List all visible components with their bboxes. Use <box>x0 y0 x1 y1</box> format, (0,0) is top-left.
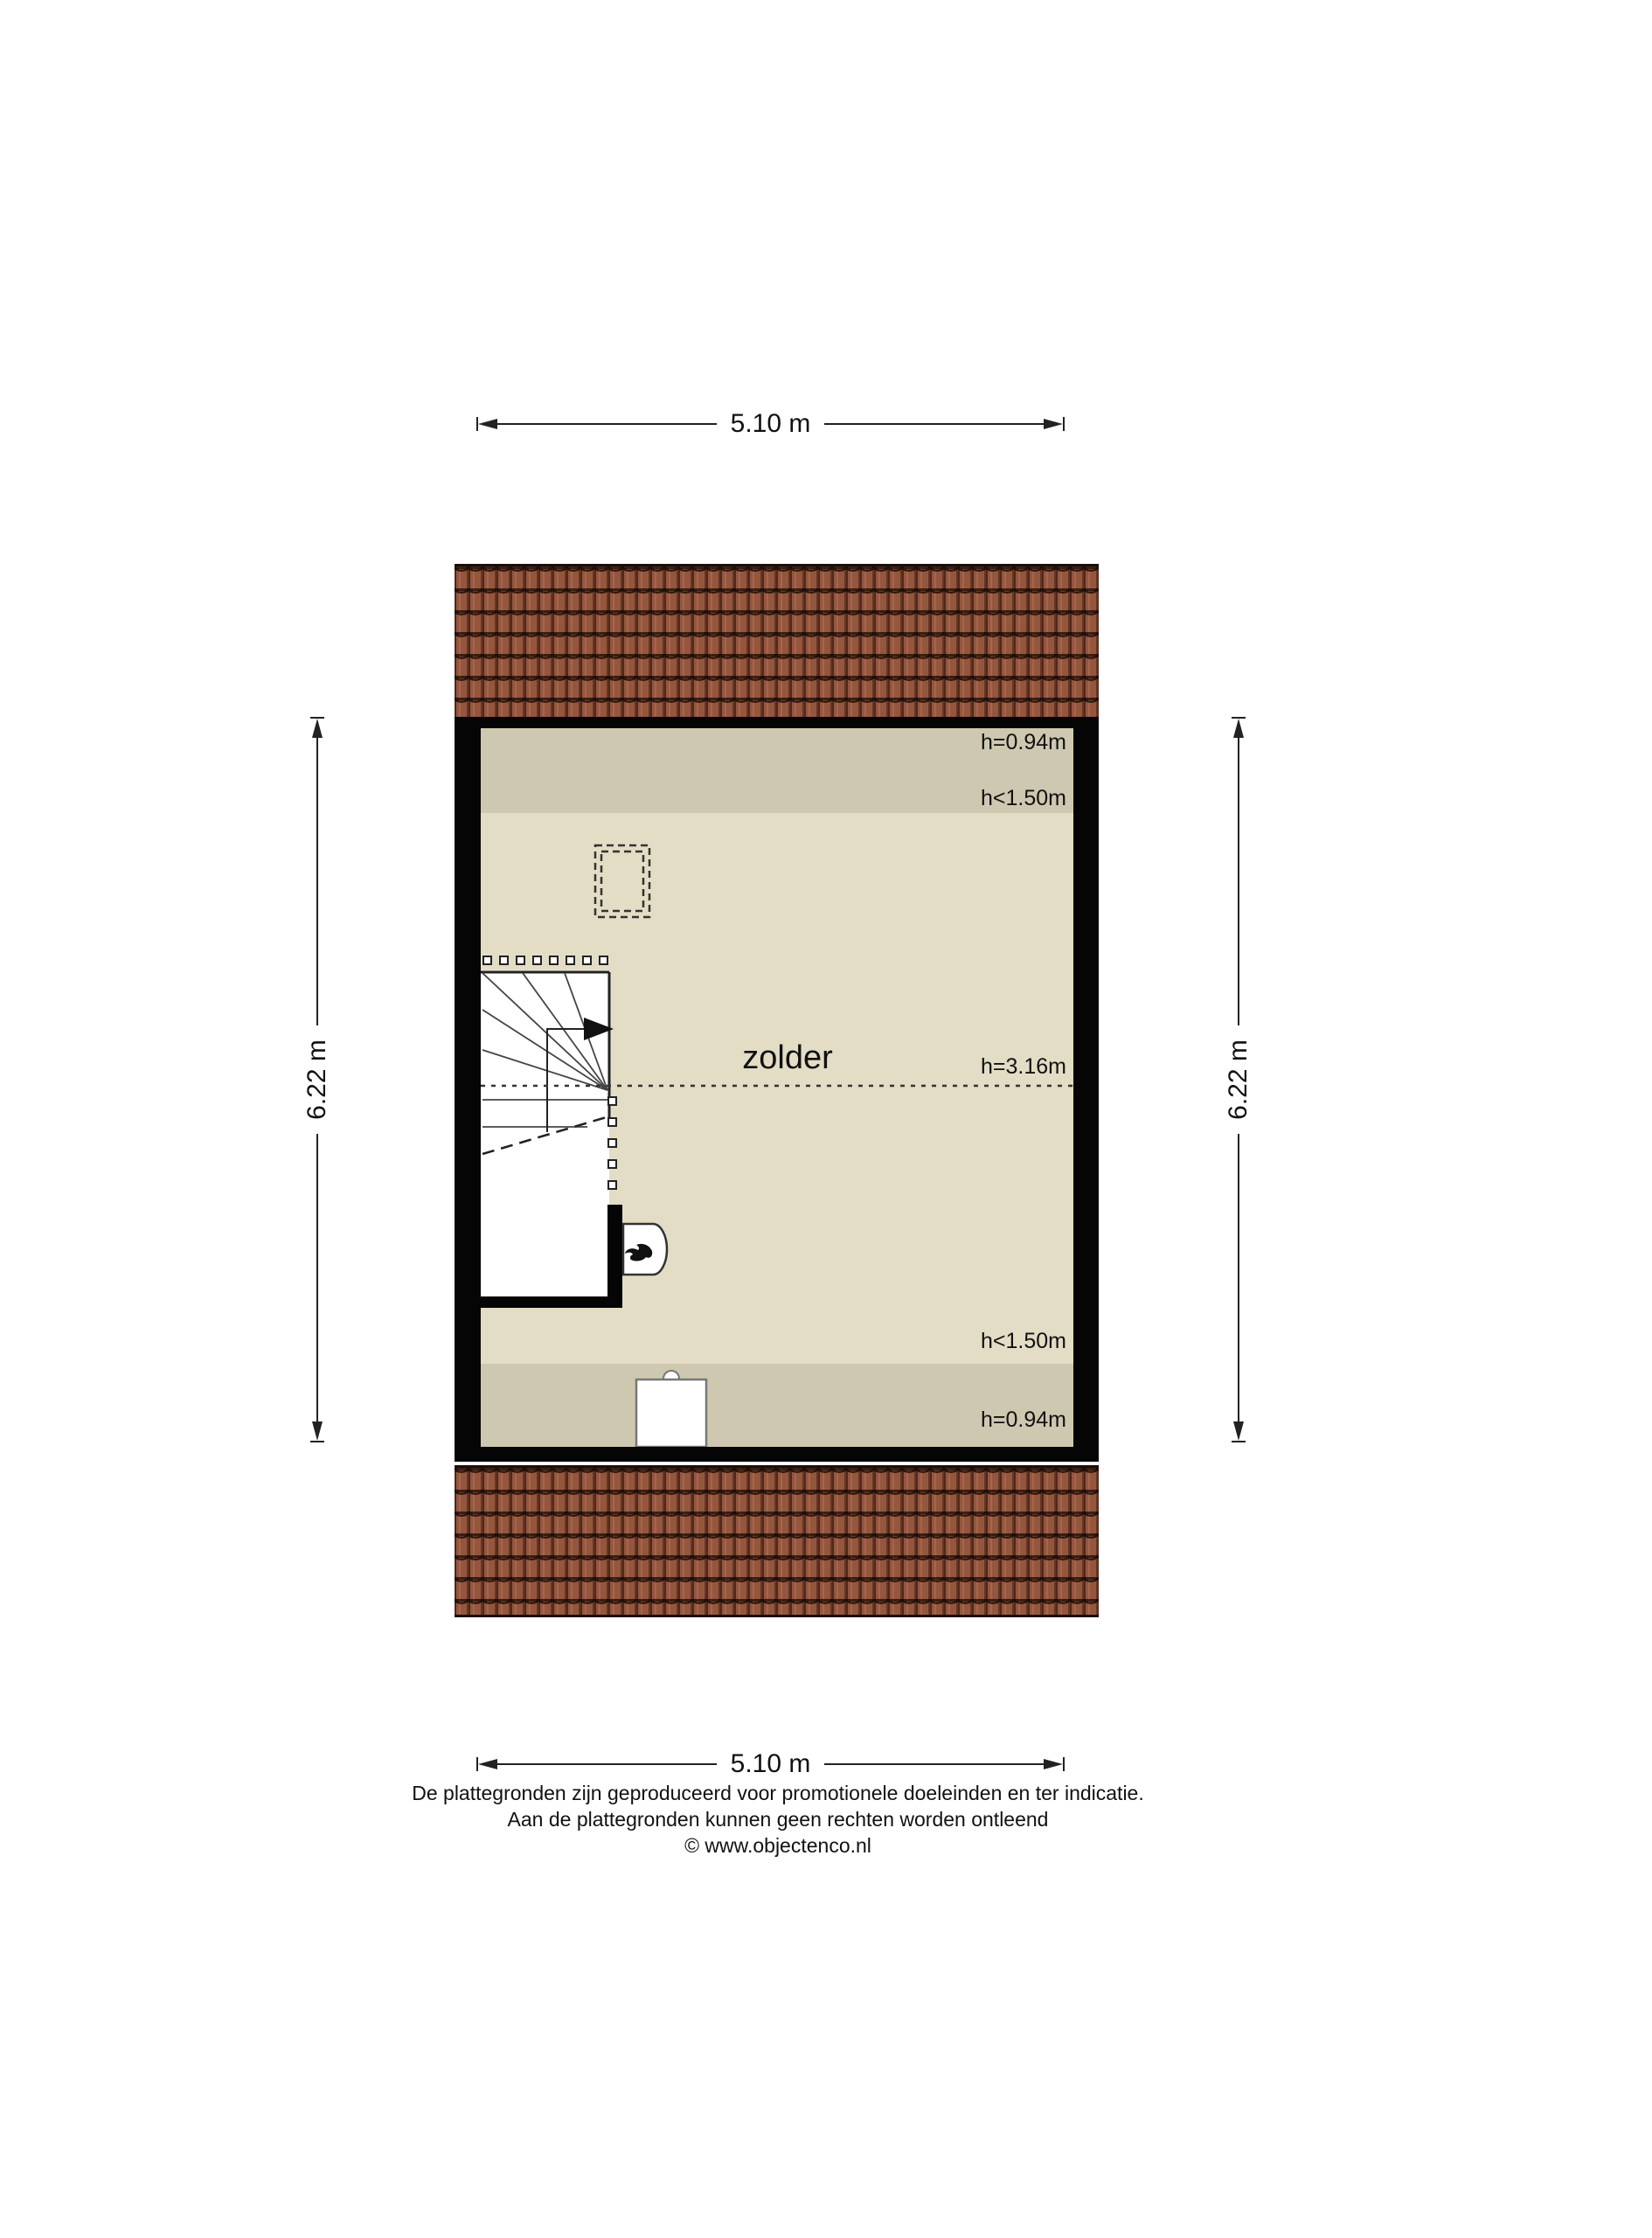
staircase <box>481 956 622 1308</box>
arrow-up-icon <box>1233 719 1244 738</box>
dimension-end-tick <box>1232 1441 1246 1442</box>
arrow-left-icon <box>478 419 497 429</box>
dimension-left-label: 6.22 m <box>302 1025 332 1134</box>
stairwell <box>481 970 609 1296</box>
dimension-line <box>316 736 318 1025</box>
dimension-line <box>316 1134 318 1423</box>
stair-top-edge-marks <box>483 956 607 964</box>
attic-floor: h=0.94m h<1.50m h=3.16m h<1.50m h=0.94m … <box>481 728 1073 1447</box>
dimension-left: 6.22 m <box>307 717 328 1442</box>
dimension-line <box>824 423 1045 425</box>
dimension-line <box>1238 1134 1239 1423</box>
footer-line-3: © www.objectenco.nl <box>350 1832 1206 1859</box>
floorplan-page: 5.10 m 6.22 m 6.22 m <box>0 0 1652 2238</box>
arrow-left-icon <box>478 1759 497 1769</box>
dimension-top: 5.10 m <box>476 414 1065 434</box>
arrow-down-icon <box>312 1421 323 1441</box>
roof-tiles-bottom <box>455 1465 1099 1617</box>
height-label-bottom-ridge: h=0.94m <box>981 1407 1066 1433</box>
dimension-end-tick <box>1063 1757 1065 1771</box>
arrow-right-icon <box>1044 1759 1063 1769</box>
height-label-bottom-band: h<1.50m <box>981 1329 1066 1354</box>
skylight-dashed-outline <box>595 845 649 917</box>
wall-stub <box>607 1205 622 1298</box>
footer-disclaimer: De plattegronden zijn geproduceerd voor … <box>350 1780 1206 1859</box>
roof-tiles-top <box>455 564 1099 722</box>
dimension-bottom-label: 5.10 m <box>717 1749 825 1779</box>
footer-line-2: Aan de plattegronden kunnen geen rechten… <box>350 1806 1206 1832</box>
arrow-right-icon <box>1044 419 1063 429</box>
dimension-bottom: 5.10 m <box>476 1754 1065 1775</box>
height-label-top-ridge: h=0.94m <box>981 730 1066 755</box>
stairwell-wall <box>481 1296 622 1308</box>
dimension-end-tick <box>310 1441 324 1442</box>
height-label-top-band: h<1.50m <box>981 786 1066 811</box>
dimension-end-tick <box>1063 417 1065 431</box>
dimension-end-tick <box>1232 717 1246 719</box>
footer-line-1: De plattegronden zijn geproduceerd voor … <box>350 1780 1206 1806</box>
boiler <box>623 1224 667 1275</box>
dimension-right-label: 6.22 m <box>1224 1025 1253 1134</box>
dimension-right: 6.22 m <box>1228 717 1249 1442</box>
arrow-down-icon <box>1233 1421 1244 1441</box>
height-label-center: h=3.16m <box>981 1054 1066 1080</box>
attic-plan: h=0.94m h<1.50m h=3.16m h<1.50m h=0.94m … <box>455 717 1099 1462</box>
dimension-top-label: 5.10 m <box>717 409 825 439</box>
dimension-line <box>496 1763 717 1765</box>
dimension-end-tick <box>310 717 324 719</box>
dimension-line <box>824 1763 1045 1765</box>
arrow-up-icon <box>312 719 323 738</box>
room-name: zolder <box>656 1039 919 1077</box>
dimension-line <box>1238 736 1239 1025</box>
dimension-line <box>496 423 717 425</box>
dormer-window <box>636 1371 706 1447</box>
